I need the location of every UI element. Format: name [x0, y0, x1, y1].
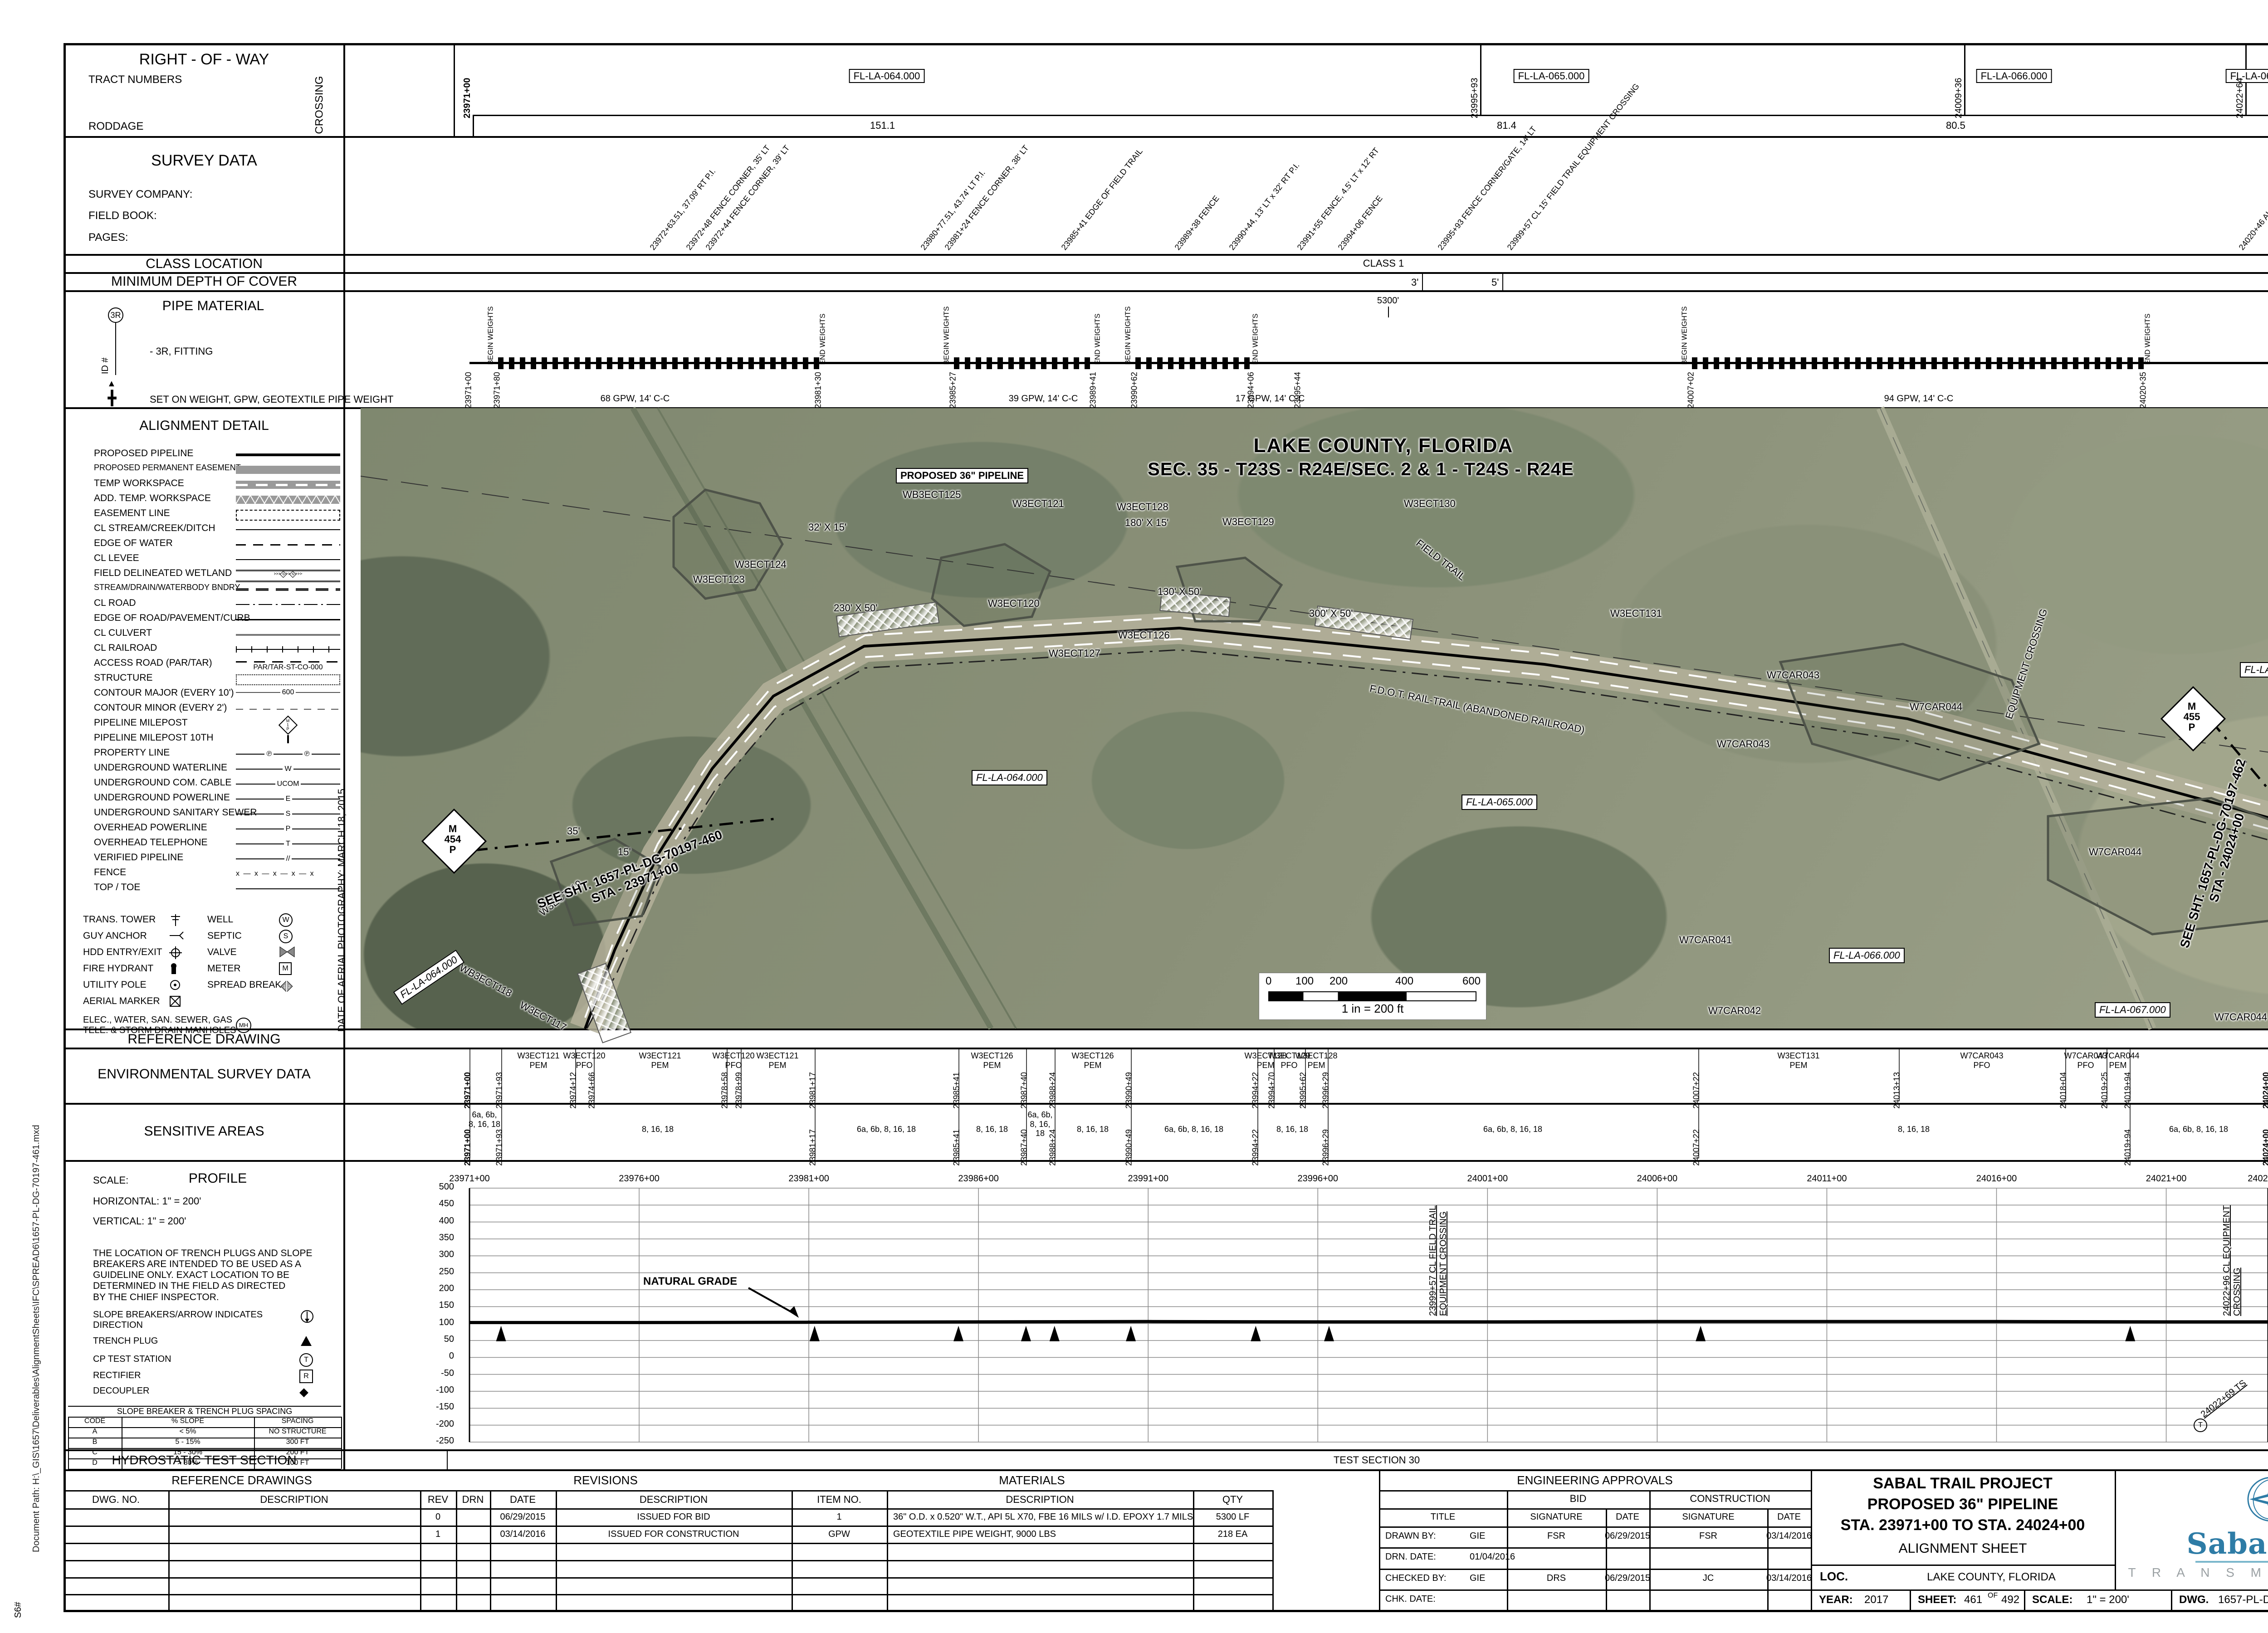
- map-tract-box: FL-LA-066.000: [1829, 948, 1905, 963]
- spacing-cell: B: [93, 1438, 98, 1446]
- profile-elev-label: 500: [439, 1182, 454, 1192]
- legend-swatch-thin: [236, 883, 340, 895]
- legend-item-label: CL STREAM/CREEK/DITCH: [94, 523, 215, 534]
- env-station-label: 23978+99: [734, 1072, 743, 1109]
- legend-swatch-access: PAR/TAR-ST-CO-000: [236, 658, 340, 670]
- col-header: DWG. NO.: [92, 1494, 140, 1505]
- map-tract-box: FL-LA-068.000: [2240, 662, 2268, 678]
- end-weights-label: END WEIGHTS: [2144, 314, 2152, 365]
- legend-item-label: OVERHEAD TELEPHONE: [94, 837, 208, 848]
- profile-elev-label: 250: [439, 1267, 454, 1277]
- line: [1379, 1569, 1811, 1570]
- profile-station-label: 24001+00: [1467, 1174, 1508, 1184]
- map-label: W3ECT130: [1404, 498, 1456, 509]
- survey-note: 23972+44 FENCE CORNER, 39' LT: [704, 143, 792, 252]
- cell: 0: [435, 1512, 440, 1522]
- map-label: W3ECT123: [693, 574, 745, 585]
- profile-elev-label: -100: [436, 1385, 454, 1395]
- MH-icon: MH: [236, 1018, 251, 1033]
- profile-legend-label: CP TEST STATION: [93, 1354, 171, 1365]
- map-label: 15': [618, 846, 631, 858]
- legend-swatch-band-dash: [236, 479, 340, 491]
- legend-symbol-label: VALVE: [207, 947, 237, 958]
- line: [122, 1417, 122, 1469]
- line: [420, 1490, 792, 1492]
- sheet-of: OF: [1988, 1592, 1998, 1600]
- col-header: SIGNATURE: [1682, 1512, 1734, 1522]
- line: [420, 1577, 792, 1579]
- approval-row-value: GIE: [1470, 1531, 1485, 1541]
- approval-cell: 03/14/2016: [1766, 1573, 1812, 1584]
- milepost-label: M454P: [431, 824, 474, 855]
- depth-value: 3': [1411, 277, 1418, 288]
- sensitive-area-codes: 6a, 6b, 8, 16, 18: [469, 1110, 500, 1129]
- map-label: W7CAR044: [1910, 701, 1962, 712]
- map-label: W7CAR043: [1717, 738, 1769, 750]
- line: [64, 1508, 420, 1510]
- pipe-station-label: 24007+02: [1686, 372, 1696, 409]
- col-header: QTY: [1222, 1494, 1243, 1505]
- line: [64, 1611, 420, 1612]
- line: [420, 1560, 792, 1561]
- legend-swatch-dashdotbox: [236, 509, 340, 521]
- line: [1379, 1490, 1811, 1492]
- wetland-id-label: W7CAR043PFO: [1960, 1051, 2003, 1070]
- line: [1272, 1490, 1274, 1611]
- svg-text:1: 1: [283, 985, 286, 989]
- line: [1502, 272, 1503, 290]
- pipe-station-label: 23990+62: [1129, 372, 1139, 409]
- legend-symbol-label: GUY ANCHOR: [83, 931, 147, 941]
- col-header: SIGNATURE: [1530, 1512, 1582, 1522]
- sheet-label: SHEET:: [1918, 1594, 1956, 1606]
- sensitive-area-codes: 8, 16, 18: [1077, 1125, 1109, 1134]
- sensitive-station-label: 23985+41: [952, 1129, 961, 1166]
- scale-value: 1" = 200': [2087, 1594, 2129, 1606]
- rect-icon: R: [299, 1370, 313, 1383]
- line: [1910, 1589, 1911, 1611]
- alignment-sheet: RIGHT - OF - WAY TRACT NUMBERS RODDAGE C…: [0, 0, 2268, 1633]
- length-dimension: 5300': [1377, 296, 1399, 306]
- profile-station-label: 23971+00: [449, 1174, 490, 1184]
- sensitive-station-label: 24007+22: [1691, 1129, 1701, 1166]
- map-label: W3ECT120: [988, 598, 1040, 609]
- map-label: W3ECT124: [735, 559, 787, 570]
- wetland-id-label: W3ECT120PFO: [712, 1051, 754, 1070]
- approvals-title: ENGINEERING APPROVALS: [1517, 1474, 1672, 1487]
- survey-note: 23972+63.51, 37.09' RT P.I.: [648, 167, 718, 252]
- roddage-value: 80.5: [1946, 120, 1965, 131]
- line: [473, 115, 474, 136]
- legend-item-label: PIPELINE MILEPOST 10TH: [94, 732, 213, 743]
- gpw-cluster-label: 68 GPW, 14' C-C: [601, 394, 670, 404]
- profile-legend-label: TRENCH PLUG: [93, 1336, 158, 1346]
- legend-symbol-label: WELL: [207, 914, 233, 925]
- fitting-note: - 3R, FITTING: [150, 346, 213, 357]
- pipe-station-label: 23981+30: [813, 372, 823, 409]
- dwg-value: 1657-PL-DG-70197-461: [2218, 1594, 2268, 1606]
- approval-cell: FSR: [1699, 1531, 1717, 1541]
- wetland-id-label: W3ECT120PFO: [563, 1051, 605, 1070]
- line: [64, 1560, 420, 1561]
- legend-item-label: UNDERGROUND POWERLINE: [94, 792, 230, 803]
- ref-drawings-title: REFERENCE DRAWINGS: [171, 1474, 312, 1487]
- line: [420, 1526, 792, 1527]
- sensitive-area-codes: 6a, 6b, 8, 16, 18: [857, 1125, 916, 1134]
- env-station-label: 24007+22: [1691, 1072, 1701, 1109]
- profile-elev-label: 100: [439, 1317, 454, 1328]
- col-header: DATE: [1777, 1512, 1801, 1522]
- profile-elev-label: 50: [444, 1334, 454, 1345]
- profile-callout: 23999+57 CL FIELD TRAIL EQUIPMENT CROSSI…: [1428, 1205, 1449, 1316]
- env-station-label: 23981+17: [808, 1072, 817, 1109]
- cell: 218 EA: [1218, 1529, 1248, 1540]
- map-label: 300' X 50': [1309, 608, 1353, 619]
- map-label: W3ECT131: [1610, 608, 1662, 619]
- divider: [64, 254, 2268, 256]
- frame-top: [64, 43, 2268, 45]
- map-tract-box: FL-LA-064.000: [972, 770, 1047, 785]
- map-tract-box: FL-LA-067.000: [2095, 1002, 2170, 1018]
- line: [68, 1417, 69, 1469]
- legend-symbol-label: TRANS. TOWER: [83, 914, 156, 925]
- approval-row-label: CHECKED BY:: [1385, 1573, 1446, 1584]
- line: [1379, 1508, 1380, 1611]
- min-depth-title: MINIMUM DEPTH OF COVER: [111, 274, 297, 290]
- profile-elev-label: 0: [449, 1351, 454, 1361]
- pipe-station-label: 24020+35: [2138, 372, 2148, 409]
- spacing-cell: > 30%: [177, 1459, 198, 1467]
- crossing-label: CROSSING: [313, 76, 326, 134]
- line: [1811, 1565, 2115, 1566]
- milepost-label: M455P: [2170, 701, 2214, 732]
- title-block-line: STA. 23971+00 TO STA. 24024+00: [1841, 1516, 2085, 1534]
- tract-number-box: FL-LA-066.000: [1976, 69, 2052, 83]
- divider: [64, 1449, 2268, 1451]
- sabal-trail-logo-compass-icon: [2243, 1473, 2268, 1526]
- class-location-title: CLASS LOCATION: [146, 256, 263, 272]
- line: [1379, 1526, 1811, 1528]
- tract-number-box: FL-LA-064.000: [849, 69, 925, 83]
- env-station-label: 23971+00: [463, 1072, 472, 1109]
- legend-item-label: ACCESS ROAD (PAR/TAR): [94, 658, 212, 668]
- map-label: W3ECT128: [1117, 501, 1168, 512]
- profile-elev-label: 450: [439, 1199, 454, 1209]
- cell: GPW: [828, 1529, 850, 1540]
- legend-symbol-label: HDD ENTRY/EXIT: [83, 947, 162, 958]
- line: [420, 1508, 792, 1510]
- legend-swatch-linetag: UCOM: [236, 778, 340, 790]
- wetland-id-label: W3ECT121PEM: [756, 1051, 798, 1070]
- env-station-label: 24024+00: [2261, 1072, 2268, 1109]
- revisions-title: REVISIONS: [573, 1474, 638, 1487]
- roddage-label: RODDAGE: [88, 120, 143, 133]
- sensitive-title: SENSITIVE AREAS: [144, 1124, 264, 1140]
- sensitive-station-label: 23981+17: [808, 1129, 817, 1166]
- line: [1767, 1508, 1769, 1611]
- cp-icon: T: [299, 1353, 313, 1367]
- pipe-material-title: PIPE MATERIAL: [162, 298, 264, 314]
- loc-value: LAKE COUNTY, FLORIDA: [1927, 1571, 2056, 1584]
- depth-value: 5': [1491, 277, 1499, 288]
- wetland-id-label: W3ECT131PEM: [1777, 1051, 1819, 1070]
- survey-title: SURVEY DATA: [151, 152, 257, 170]
- line: [792, 1526, 1272, 1527]
- cell: 03/14/2016: [500, 1529, 545, 1540]
- spacing-cell: 5 - 15%: [175, 1438, 200, 1446]
- survey-company-label: SURVEY COMPANY:: [88, 188, 192, 201]
- profile-chart: [343, 1160, 2268, 1449]
- scale-label: SCALE:: [2032, 1594, 2072, 1606]
- profile-elev-label: -150: [436, 1402, 454, 1412]
- scalebar-caption: 1 in = 200 ft: [1342, 1002, 1404, 1016]
- map-label: W7CAR042: [1708, 1005, 1761, 1016]
- line: [2024, 1589, 2025, 1611]
- approval-cell: 03/14/2016: [1766, 1531, 1812, 1541]
- approval-row-label: DRN. DATE:: [1385, 1552, 1436, 1562]
- line: [420, 1594, 792, 1595]
- svg-text:2: 2: [288, 985, 290, 989]
- legend-swatch-fence: x — x — x — x — x: [236, 868, 340, 880]
- profile-elev-label: -250: [436, 1436, 454, 1446]
- pipe-station-label: 23995+44: [1293, 372, 1302, 409]
- bM-icon: M: [279, 962, 292, 975]
- legend-swatch-wetland: ᚛᚛᚛W᚛᚛M᚛᚛᚛: [236, 569, 340, 580]
- map-line-work: [361, 408, 2268, 1029]
- profile-elev-label: 200: [439, 1283, 454, 1294]
- arrow-down-icon: ▲: [107, 379, 116, 389]
- legend-item-label: EDGE OF ROAD/PAVEMENT/CURB: [94, 613, 250, 624]
- col-header: REV: [428, 1494, 448, 1505]
- profile-elev-label: 400: [439, 1216, 454, 1226]
- profile-elev-label: 150: [439, 1300, 454, 1311]
- map-label: WB3ECT125: [903, 489, 961, 500]
- env-station-label: 23995+62: [1298, 1072, 1308, 1109]
- line: [473, 115, 2268, 116]
- col-header: DATE: [510, 1494, 536, 1505]
- gpw-cluster-label: 39 GPW, 14' C-C: [1009, 394, 1078, 404]
- env-station-label: 23988+24: [1048, 1072, 1057, 1109]
- spacing-cell: D: [92, 1459, 98, 1467]
- field-book-label: FIELD BOOK:: [88, 210, 157, 222]
- cell: 36" O.D. x 0.520" W.T., API 5L X70, FBE …: [893, 1512, 1193, 1522]
- map-label: W7CAR044: [2089, 846, 2141, 858]
- wetland-id-label: W3ECT126PEM: [1071, 1051, 1114, 1070]
- spacing-cell: % SLOPE: [171, 1417, 204, 1425]
- sensitive-station-label: 24024+00: [2261, 1129, 2268, 1166]
- legend-symbol-label: FIRE HYDRANT: [83, 963, 153, 974]
- profile-elev-label: -200: [436, 1419, 454, 1429]
- map-label: 180' X 15': [1125, 517, 1168, 528]
- legend-item-label: TEMP WORKSPACE: [94, 478, 184, 489]
- legend-swatch-linetag2: ℗℗: [236, 748, 340, 760]
- logo-name: SabalTrail: [2187, 1527, 2268, 1561]
- line: [1507, 1490, 1508, 1508]
- pipe-station-label: 23971+80: [492, 372, 502, 409]
- map-label: W7CAR043: [1767, 669, 1819, 681]
- spacing-cell: NO STRUCTURE: [269, 1428, 326, 1436]
- year-label: YEAR:: [1819, 1594, 1853, 1606]
- profile-scale-label: SCALE:: [93, 1175, 128, 1186]
- pipe-weight-cluster: [1135, 357, 1252, 369]
- spacing-cell: A: [93, 1428, 98, 1436]
- profile-legend-label: DECOUPLER: [93, 1386, 149, 1396]
- survey-note: 23991+55 FENCE, 4.5' LT x 12' RT: [1295, 146, 1381, 252]
- cell: ISSUED FOR CONSTRUCTION: [608, 1529, 739, 1540]
- approval-cell: FSR: [1547, 1531, 1565, 1541]
- row-station-label: 24009+36: [1954, 78, 1964, 118]
- line: [447, 1451, 448, 1469]
- legend-swatch-linetag: E: [236, 793, 340, 805]
- legend-item-label: UNDERGROUND COM. CABLE: [94, 777, 231, 788]
- line: [115, 323, 116, 375]
- approval-cell: DRS: [1547, 1573, 1566, 1584]
- profile-vertical: VERTICAL: 1" = 200': [93, 1215, 186, 1227]
- legend-item-label: ADD. TEMP. WORKSPACE: [94, 493, 211, 504]
- line: [341, 1417, 342, 1469]
- row-station-label: 23995+93: [1470, 78, 1480, 118]
- col-header: DESCRIPTION: [640, 1494, 708, 1505]
- line: [1388, 307, 1389, 317]
- approval-row-label: DRAWN BY:: [1385, 1531, 1436, 1541]
- alignment-detail-title: ALIGNMENT DETAIL: [139, 418, 269, 434]
- legend-swatch-heavydash: [236, 584, 340, 595]
- line: [1649, 1508, 1651, 1611]
- profile-callout: 24022+96 CL EQUIPMENT CROSSING: [2222, 1205, 2243, 1316]
- manholes-label: ELEC., WATER, SAN. SEWER, GAS TELE. & ST…: [83, 1015, 236, 1036]
- tract-numbers-label: TRACT NUMBERS: [88, 73, 182, 86]
- sheet-total: 492: [2001, 1594, 2019, 1606]
- legend-item-label: TOP / TOE: [94, 882, 140, 893]
- wetland-id-label: W7CAR044PEM: [2096, 1051, 2139, 1070]
- env-station-label: 24018+04: [2058, 1072, 2068, 1109]
- legend-swatch-band: [236, 464, 340, 476]
- materials-title: MATERIALS: [999, 1474, 1065, 1487]
- legend-swatch-thin: [236, 524, 340, 536]
- profile-elev-label: -50: [441, 1368, 454, 1379]
- legend-item-label: EDGE OF WATER: [94, 538, 173, 549]
- sensitive-area-codes: 8, 16, 18: [1898, 1125, 1930, 1134]
- map-section-title: SEC. 35 - T23S - R24E/SEC. 2 & 1 - T24S …: [1148, 459, 1574, 480]
- document-path: Document Path: H:\_GIS\1657\Deliverables…: [31, 1125, 42, 1552]
- line: [792, 1560, 1272, 1561]
- legend-item-label: CL ROAD: [94, 598, 136, 609]
- scalebar: 0 100 200 400 600 1 in = 200 ft: [1259, 973, 1486, 1020]
- legend-swatch-dash2: [236, 703, 340, 715]
- sensitive-area-codes: 6a, 6b, 8, 16, 18: [2169, 1125, 2228, 1134]
- profile-station-label: 23976+00: [619, 1174, 660, 1184]
- spacing-cell: SPACING: [282, 1417, 314, 1425]
- profile-legend-label: SLOPE BREAKERS/ARROW INDICATES DIRECTION: [93, 1310, 263, 1331]
- profile-elev-label: 300: [439, 1249, 454, 1260]
- line: [1379, 1547, 1811, 1549]
- profile-station-label: 24006+00: [1637, 1174, 1678, 1184]
- profile-station-label: 23981+00: [788, 1174, 829, 1184]
- legend-symbol-label: METER: [207, 963, 241, 974]
- group-header: BID: [1570, 1493, 1587, 1504]
- env-station-label: 23994+22: [1251, 1072, 1260, 1109]
- env-station-label: 23974+12: [568, 1072, 578, 1109]
- cp-test-station-icon: T: [2194, 1419, 2207, 1432]
- spacing-cell: CODE: [84, 1417, 105, 1425]
- line: [420, 1543, 792, 1544]
- legend-item-label: CL LEVEE: [94, 553, 139, 564]
- spacing-table-title: SLOPE BREAKER & TRENCH PLUG SPACING: [117, 1407, 292, 1416]
- pipe-weight-cluster: [1692, 357, 2144, 369]
- weight-symbol-icon: ╋: [108, 391, 116, 407]
- legend-item-label: CL RAILROAD: [94, 643, 157, 653]
- line: [454, 43, 455, 136]
- legend-item-label: PROPERTY LINE: [94, 747, 170, 758]
- frame-left: [64, 43, 66, 1612]
- cell: 5300 LF: [1216, 1512, 1249, 1522]
- spacing-cell: < 5%: [180, 1428, 196, 1436]
- sensitive-station-label: 24019+94: [2123, 1129, 2132, 1166]
- col-header: ITEM NO.: [817, 1494, 861, 1505]
- line: [1422, 272, 1423, 290]
- line: [64, 1526, 420, 1527]
- divider: [64, 1469, 2268, 1471]
- legend-swatch-dashdot: [236, 599, 340, 610]
- map-label: W7CAR044: [2214, 1011, 2267, 1023]
- approval-row-label: CHK. DATE:: [1385, 1594, 1436, 1604]
- col-header: DRN: [462, 1494, 484, 1505]
- weight-note: SET ON WEIGHT, GPW, GEOTEXTILE PIPE WEIG…: [150, 394, 393, 405]
- legend-swatch-dotbox: [236, 673, 340, 685]
- natural-grade-label: NATURAL GRADE: [643, 1275, 737, 1288]
- sensitive-area-codes: 6a, 6b, 8, 16, 18: [1027, 1110, 1052, 1138]
- legend-symbol-label: SPREAD BREAK: [207, 980, 281, 990]
- env-station-label: 23990+49: [1124, 1072, 1134, 1109]
- divider: [64, 1029, 2268, 1030]
- wetland-id-label: W3ECT121PEM: [517, 1051, 559, 1070]
- map-label: W3ECT126: [1118, 629, 1170, 641]
- begin-weights-label: BEGIN WEIGHTS: [943, 306, 951, 365]
- sensitive-area-codes: 6a, 6b, 8, 16, 18: [1164, 1125, 1223, 1134]
- legend-swatch-thick: [236, 449, 340, 461]
- divider: [64, 290, 2268, 292]
- roddage-value: 151.1: [870, 120, 895, 131]
- tract-number-box: FL-LA-067.000: [2226, 69, 2268, 83]
- legend-item-label: STREAM/DRAIN/WATERBODY BNDRY: [94, 583, 240, 592]
- survey-note: 24021+40 FENCE CORNER, 36' LT: [2266, 143, 2268, 252]
- row-station-label: 24022+64: [2235, 78, 2245, 118]
- legend-item-label: EASEMENT LINE: [94, 508, 170, 519]
- divider: [64, 1048, 2268, 1049]
- line: [792, 1577, 1272, 1579]
- row-title: RIGHT - OF - WAY: [139, 51, 269, 68]
- pipe-station-label: 23971+00: [464, 372, 473, 409]
- env-station-label: 23994+70: [1267, 1072, 1276, 1109]
- legend-swatch-thin2: [236, 614, 340, 625]
- sensitive-area-codes: 8, 16, 18: [1276, 1125, 1308, 1134]
- tract-number-box: FL-LA-065.000: [1514, 69, 1589, 83]
- profile-station-label: 24024+00: [2248, 1174, 2268, 1184]
- profile-station-label: 24021+00: [2146, 1174, 2187, 1184]
- sensitive-area-codes: 8, 16, 18: [976, 1125, 1008, 1134]
- profile-station-label: 23991+00: [1128, 1174, 1168, 1184]
- line: [792, 1543, 1272, 1544]
- sensitive-station-label: 23996+29: [1321, 1129, 1330, 1166]
- legend-swatch-rail: [236, 643, 340, 655]
- line: [1379, 1508, 1811, 1510]
- end-weights-label: END WEIGHTS: [819, 314, 827, 365]
- line: [1379, 1611, 1811, 1612]
- dwg-label: DWG.: [2179, 1594, 2209, 1606]
- cell: 1: [435, 1529, 440, 1540]
- profile-note: THE LOCATION OF TRENCH PLUGS AND SLOPE B…: [93, 1248, 312, 1303]
- map-label: W3ECT121: [1012, 498, 1064, 509]
